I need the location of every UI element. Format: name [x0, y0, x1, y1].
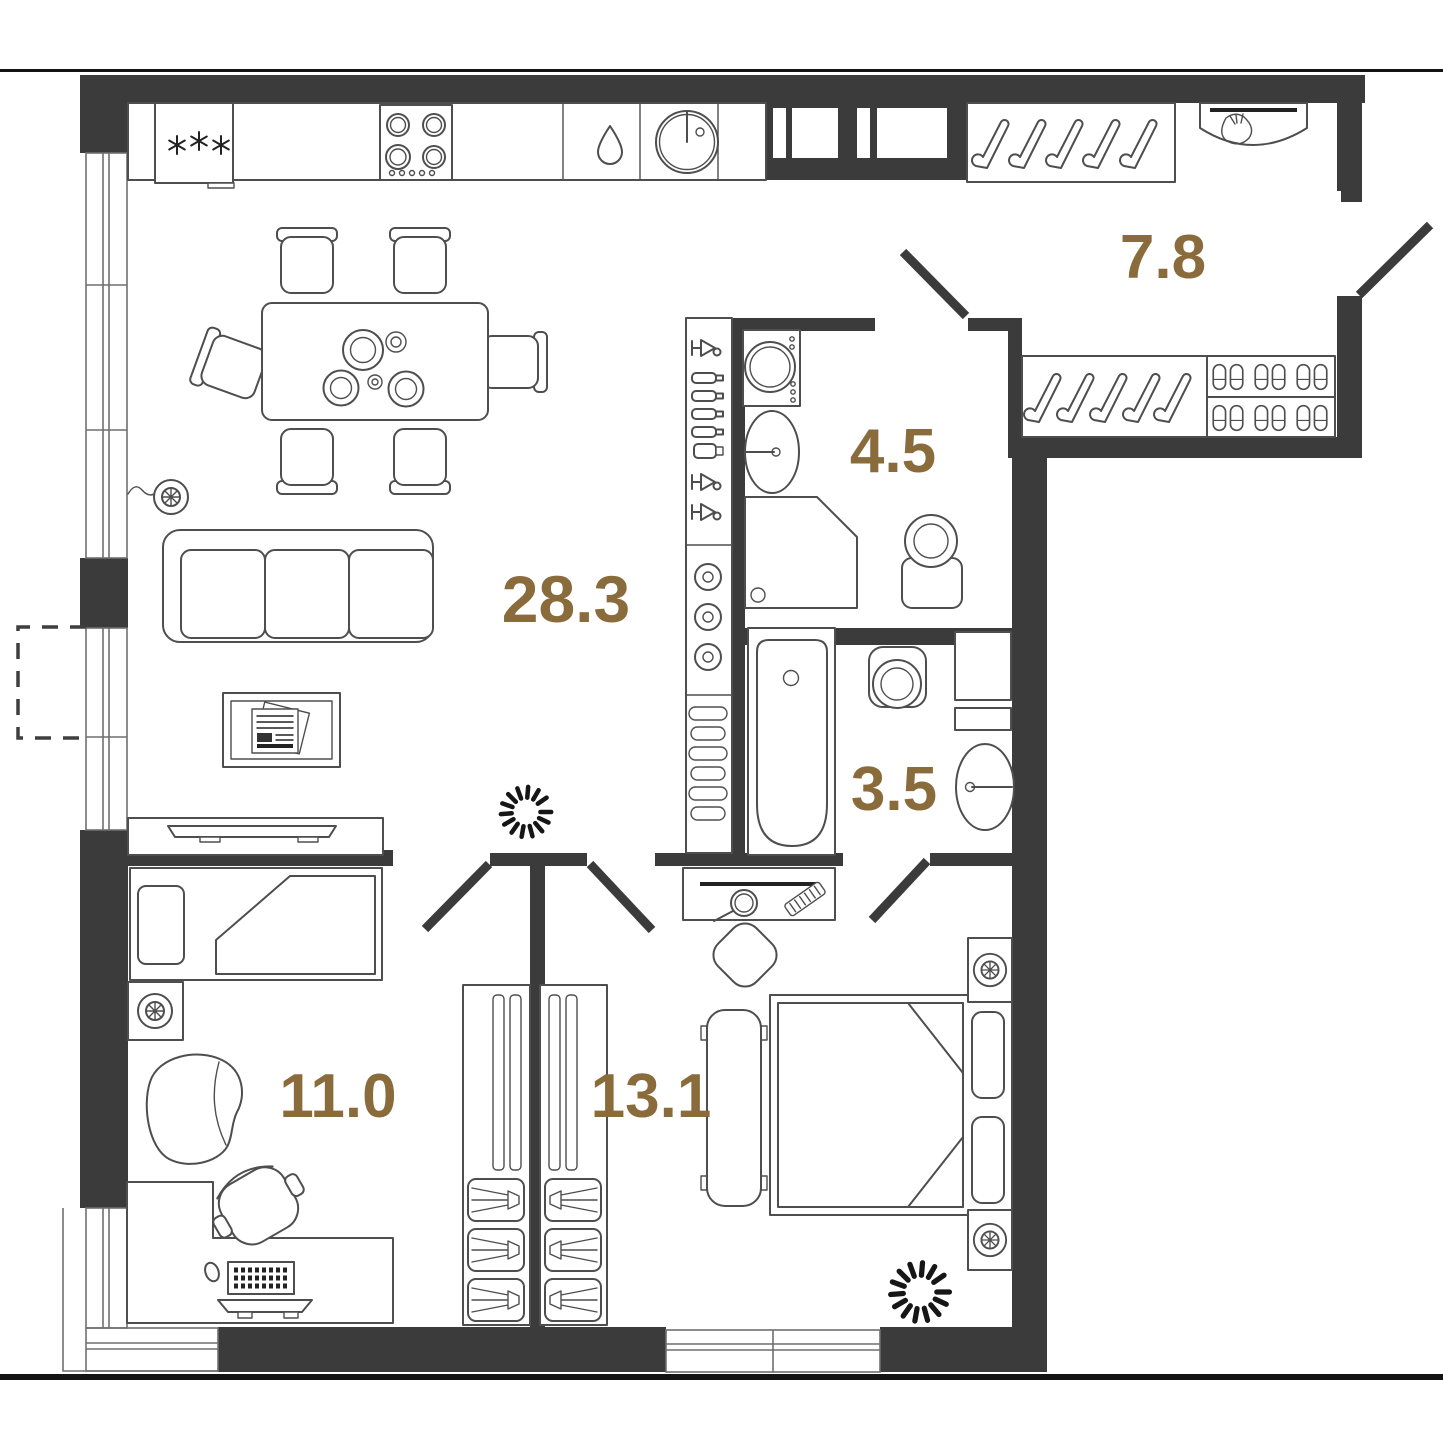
- bottle-icon: [692, 391, 723, 401]
- nightstand-bottom: [968, 1210, 1012, 1270]
- hob-icon: [380, 105, 452, 180]
- kitchen-sink-icon: [656, 111, 718, 173]
- washing-machine-icon: [743, 330, 800, 406]
- room-label-hall: 7.8: [1120, 223, 1206, 292]
- kitchen: [128, 103, 766, 188]
- nightstand-top: [968, 938, 1012, 1002]
- dining-chair: [390, 429, 450, 494]
- toilet-icon: [902, 515, 962, 608]
- bar-shelf-unit: [686, 318, 732, 853]
- toilet-icon: [869, 647, 926, 708]
- clothes-drawer-icon: [468, 1279, 524, 1321]
- dining-table: [262, 303, 488, 420]
- bottle-icon: [692, 373, 723, 383]
- single-bed: [130, 868, 382, 980]
- dining-chair: [189, 326, 271, 405]
- armchair: [147, 1055, 242, 1164]
- clothes-drawer-icon: [468, 1229, 524, 1271]
- clothes-drawer-icon: [468, 1179, 524, 1221]
- floor-plan: 28.3 7.8 4.5 3.5 11.0 13.1: [0, 0, 1443, 1443]
- fridge-icon: [155, 103, 234, 188]
- tv-icon: [168, 826, 336, 837]
- bottle-icon: [692, 409, 723, 419]
- room-label-shower-room: 4.5: [850, 417, 936, 486]
- door-bedroom-small: [425, 864, 489, 929]
- wall-sconce-icon: [128, 480, 188, 514]
- washbasin-icon: [956, 744, 1014, 830]
- dressing-table: [683, 868, 835, 993]
- wardrobe-top: [967, 103, 1175, 182]
- shower-tray-icon: [745, 497, 857, 608]
- clothes-drawer-icon: [545, 1179, 601, 1221]
- washbasin-icon: [745, 411, 799, 493]
- bottle-icon: [692, 427, 723, 437]
- door-bedroom-master: [590, 864, 652, 930]
- dining-chair: [277, 429, 337, 494]
- room-label-bedroom-master: 13.1: [591, 1062, 712, 1131]
- top-rule: [0, 69, 1443, 72]
- shoe-shelf: [1207, 356, 1335, 437]
- wardrobe-lower: [1022, 356, 1207, 437]
- dining-set: [189, 228, 547, 494]
- dining-chair: [390, 228, 450, 293]
- room-label-bedroom-small: 11.0: [279, 1062, 396, 1131]
- plant-icon: [891, 1263, 950, 1321]
- bathtub-icon: [748, 628, 835, 855]
- wardrobe-right: [540, 985, 607, 1325]
- keyboard-icon: [228, 1262, 294, 1294]
- lamp-icon: [974, 1224, 1006, 1256]
- lamp-icon: [974, 954, 1006, 986]
- room-label-living-kitchen: 28.3: [502, 562, 630, 636]
- door-shower-room: [903, 252, 966, 316]
- balcony-door-window: [86, 628, 127, 830]
- floor-plan-page: 28.3 7.8 4.5 3.5 11.0 13.1: [0, 0, 1443, 1443]
- door-bathroom: [872, 861, 927, 920]
- balcony-outline: [18, 627, 86, 738]
- desk: [127, 1150, 393, 1323]
- dining-chair: [482, 332, 547, 392]
- double-bed: [770, 995, 1012, 1215]
- vent-shaft-openings: [773, 108, 947, 158]
- towel-radiator: [955, 632, 1011, 730]
- pillow: [972, 1012, 1004, 1098]
- tv-stand: [128, 818, 383, 855]
- master-bedroom-window: [666, 1330, 880, 1372]
- pillow: [972, 1117, 1004, 1203]
- room-label-bathroom: 3.5: [851, 755, 937, 824]
- coffee-table: [223, 693, 340, 767]
- bottom-rule: [0, 1374, 1443, 1380]
- stool: [707, 917, 783, 993]
- plant-icon: [501, 787, 551, 837]
- vent-unit: [128, 982, 183, 1040]
- living-room-window: [86, 153, 127, 558]
- sofa: [163, 530, 433, 642]
- entrance-door: [1359, 225, 1430, 295]
- wardrobe-left: [463, 985, 530, 1325]
- console-shelf: [1200, 103, 1307, 145]
- dining-chair: [277, 228, 337, 293]
- clothes-drawer-icon: [545, 1229, 601, 1271]
- clothes-drawer-icon: [545, 1279, 601, 1321]
